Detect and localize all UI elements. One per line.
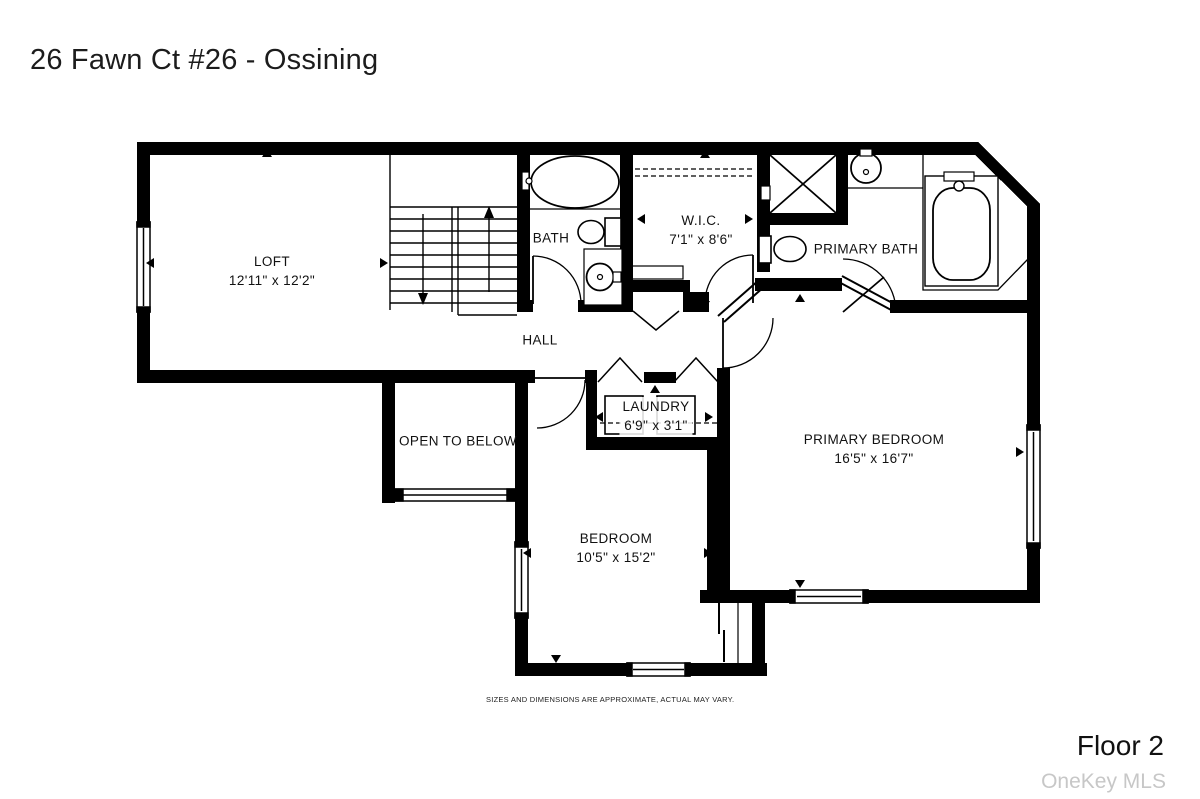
room-label-laundry: LAUNDRY 6'9" x 3'1" xyxy=(619,397,692,435)
room-dimensions: 12'11" x 12'2" xyxy=(229,271,315,290)
room-name: HALL xyxy=(522,331,557,350)
room-dimensions: 16'5" x 16'7" xyxy=(804,449,945,468)
room-name: BEDROOM xyxy=(576,529,655,548)
railing xyxy=(395,489,515,501)
page-title: 26 Fawn Ct #26 - Ossining xyxy=(30,44,378,77)
door-arc xyxy=(705,255,753,303)
door-arc xyxy=(535,378,585,428)
room-dimensions: 7'1" x 8'6" xyxy=(669,230,732,249)
floor-label: Floor 2 xyxy=(1077,730,1164,762)
disclaimer-text: SIZES AND DIMENSIONS ARE APPROXIMATE, AC… xyxy=(486,695,734,704)
room-dimensions: 6'9" x 3'1" xyxy=(622,416,689,435)
door-arc xyxy=(533,256,581,304)
floor-plan-page: { "header": { "title": "26 Fawn Ct #26 -… xyxy=(0,0,1200,799)
shower-icon xyxy=(761,155,836,213)
room-label-primary-bath: PRIMARY BATH xyxy=(814,240,919,259)
bathtub-icon xyxy=(925,172,998,286)
bifold-door xyxy=(674,358,718,382)
room-name: BATH xyxy=(533,229,570,248)
toilet-icon xyxy=(759,236,806,263)
floor-plan-drawing xyxy=(0,0,1200,799)
room-name: PRIMARY BEDROOM xyxy=(804,430,945,449)
stairs-icon xyxy=(390,155,517,315)
room-name: LAUNDRY xyxy=(622,397,689,416)
bifold-door xyxy=(633,311,679,330)
room-label-loft: LOFT 12'11" x 12'2" xyxy=(229,252,315,290)
window xyxy=(1027,425,1040,548)
room-label-hall: HALL xyxy=(522,331,557,350)
room-name: OPEN TO BELOW xyxy=(399,432,517,451)
window xyxy=(137,222,150,312)
room-name: W.I.C. xyxy=(669,211,732,230)
toilet-icon xyxy=(578,218,621,246)
sink-icon xyxy=(584,249,622,305)
room-label-bedroom: BEDROOM 10'5" x 15'2" xyxy=(576,529,655,567)
door-arc xyxy=(843,259,896,312)
window xyxy=(790,590,868,603)
room-label-primary-bedroom: PRIMARY BEDROOM 16'5" x 16'7" xyxy=(804,430,945,468)
room-name: LOFT xyxy=(229,252,315,271)
closet-sliding-door xyxy=(719,600,738,663)
bifold-door xyxy=(598,358,642,382)
room-label-bath: BATH xyxy=(533,229,570,248)
door-arc xyxy=(723,318,773,368)
closet-shelf xyxy=(631,266,683,279)
mls-watermark: OneKey MLS xyxy=(1041,770,1166,794)
window xyxy=(627,663,690,676)
room-label-wic: W.I.C. 7'1" x 8'6" xyxy=(669,211,732,249)
bathtub-icon xyxy=(522,156,620,209)
room-dimensions: 10'5" x 15'2" xyxy=(576,548,655,567)
room-label-open-to-below: OPEN TO BELOW xyxy=(399,432,517,451)
room-name: PRIMARY BATH xyxy=(814,240,919,259)
